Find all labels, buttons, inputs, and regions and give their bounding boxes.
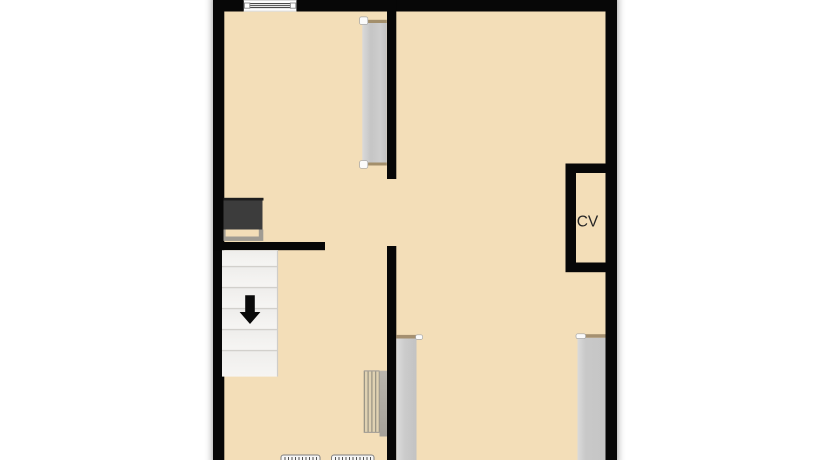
svg-text:CV: CV <box>577 214 599 231</box>
